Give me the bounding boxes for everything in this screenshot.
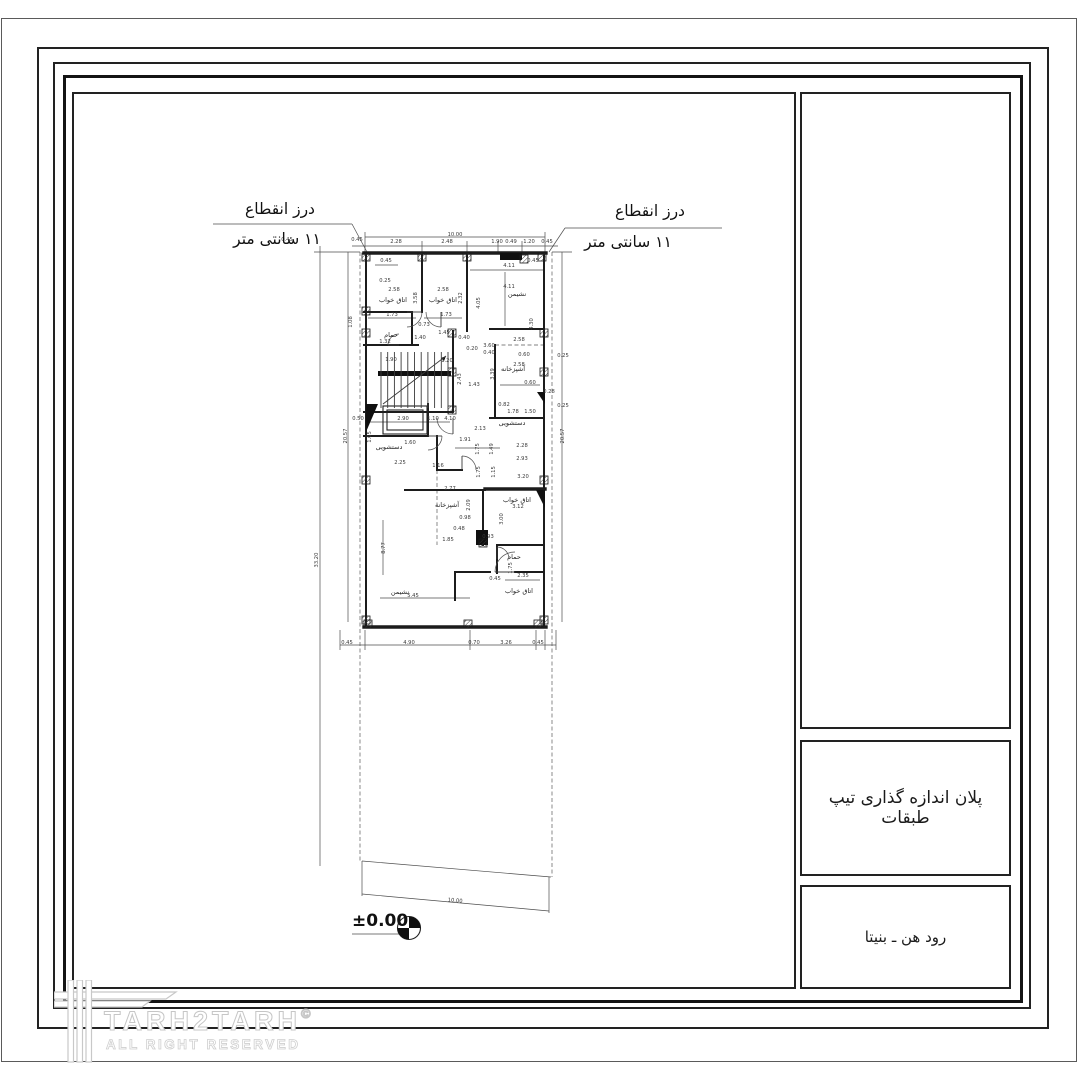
drawing-title-panel: پلان اندازه گذاری تیپ طبقات bbox=[800, 740, 1011, 876]
dim-label: 3.26 bbox=[500, 640, 512, 646]
dim-label: 4.05 bbox=[476, 297, 482, 309]
dim-label: 2.58 bbox=[513, 337, 525, 343]
dim-label: 1.16 bbox=[432, 463, 444, 469]
dim-label: 0.45 bbox=[341, 640, 353, 646]
dim-label: 3.39 bbox=[490, 368, 496, 380]
shear-wall bbox=[500, 253, 522, 260]
dim-label: 1.45 bbox=[438, 330, 450, 336]
dim-label: 0.25 bbox=[557, 353, 569, 359]
dim-label: 2.58 bbox=[388, 287, 400, 293]
project-name: رود هن ـ بنیتا bbox=[865, 928, 947, 946]
expansion-joint-note: درز انقطاع bbox=[615, 202, 685, 221]
dim-label: 2.77 bbox=[444, 486, 456, 492]
dim-label: 1.85 bbox=[442, 537, 454, 543]
room-label: نشیمن bbox=[508, 290, 526, 298]
dim-label: 2.25 bbox=[394, 460, 406, 466]
sheet: اتاق خواباتاق خوابنشیمنحمامآشپزخانهدستشو… bbox=[0, 0, 1080, 1080]
dim-label: 3.58 bbox=[413, 292, 419, 304]
dim-label: 1.10 bbox=[427, 416, 439, 422]
room-label: آشپزخانه bbox=[435, 500, 460, 509]
column bbox=[463, 253, 471, 261]
dim-label: 0.25 bbox=[379, 278, 391, 284]
column bbox=[540, 329, 548, 337]
dim-label: 0.93 bbox=[482, 534, 494, 540]
dim-label: 0.49 bbox=[505, 239, 517, 245]
door-arc bbox=[462, 456, 476, 470]
dim-label: 1.65 bbox=[367, 431, 373, 443]
dim-label: 4.90 bbox=[403, 640, 415, 646]
dim-label: 4.10 bbox=[444, 416, 456, 422]
dim-label: 2.58 bbox=[437, 287, 449, 293]
shear-wall bbox=[536, 490, 545, 508]
expansion-joint-note: ۱۱ سانتی متر bbox=[232, 230, 321, 248]
dim-label: 3.60 bbox=[483, 343, 495, 349]
room-label: اتاق خواب bbox=[505, 587, 533, 595]
dim-label: 0.20 bbox=[466, 346, 478, 352]
door-arc bbox=[428, 436, 442, 450]
watermark-brand: TARH2TARH© bbox=[104, 1006, 311, 1037]
column bbox=[534, 620, 542, 628]
level-text: ±0.00 bbox=[352, 911, 408, 931]
column bbox=[362, 476, 370, 484]
dim-label: 3.00 bbox=[499, 513, 505, 525]
shear-wall bbox=[366, 404, 378, 432]
dim-label: 0.40 bbox=[483, 350, 495, 356]
dim-label: 1.40 bbox=[414, 335, 426, 341]
dim-label: 1.73 bbox=[386, 312, 398, 318]
dim-label: 2.93 bbox=[516, 456, 528, 462]
dim-label: 2.90 bbox=[397, 416, 409, 422]
dim-label: 1.75 bbox=[508, 562, 514, 574]
dim-label: 0.50 bbox=[352, 416, 364, 422]
dim-label: 0.60 bbox=[518, 352, 530, 358]
dim-label: 0.28 bbox=[543, 389, 555, 395]
dim-label: 1.49 bbox=[489, 443, 495, 455]
column bbox=[362, 329, 370, 337]
dim-label: 2.28 bbox=[516, 443, 528, 449]
room-label: دستشویی bbox=[499, 419, 526, 427]
dim-label: 4.11 bbox=[503, 263, 515, 269]
dim-label: 2.48 bbox=[441, 239, 453, 245]
watermark-subtitle: ALL RIGHT RESERVED bbox=[106, 1037, 301, 1052]
dim-label: 0.70 bbox=[468, 640, 480, 646]
drawing-title: پلان اندازه گذاری تیپ طبقات bbox=[802, 788, 1009, 828]
dim-label: 0.45 bbox=[489, 576, 501, 582]
dim-label: 2.28 bbox=[390, 239, 402, 245]
dim-label: 20.57 bbox=[343, 429, 349, 444]
dim-label: 20.57 bbox=[560, 429, 566, 444]
dim-label: 2.43 bbox=[457, 373, 463, 385]
walls bbox=[364, 253, 546, 627]
dim-label: 1.60 bbox=[404, 440, 416, 446]
column bbox=[448, 368, 456, 376]
dim-label: 1.08 bbox=[348, 316, 354, 328]
dim-label: 1.73 bbox=[440, 312, 452, 318]
dim-label: 0.45 bbox=[380, 258, 392, 264]
dim-label: 3.20 bbox=[517, 474, 529, 480]
north-panel: NORTH bbox=[800, 92, 1011, 729]
column bbox=[540, 476, 548, 484]
dim-line bbox=[362, 861, 551, 877]
dim-label: 0.45 bbox=[351, 237, 363, 243]
column bbox=[540, 368, 548, 376]
column bbox=[362, 253, 370, 261]
plan-texts: اتاق خواباتاق خوابنشیمنحمامآشپزخانهدستشو… bbox=[232, 200, 685, 931]
room-label: اتاق خواب bbox=[503, 496, 531, 504]
dim-label: 1.91 bbox=[459, 437, 471, 443]
watermark: TARH2TARH© ALL RIGHT RESERVED bbox=[48, 980, 308, 1075]
room-label: دستشویی bbox=[376, 443, 403, 451]
dim-label: 1.50 bbox=[524, 409, 536, 415]
column bbox=[362, 307, 370, 315]
dim-label: 0.45 bbox=[527, 258, 539, 264]
column bbox=[364, 620, 372, 628]
dim-label: 1.20 bbox=[441, 358, 453, 364]
room-label: اتاق خواب bbox=[379, 296, 407, 304]
column bbox=[479, 539, 487, 547]
room-label: حمام bbox=[507, 553, 521, 561]
dim-label: 1.90 bbox=[491, 239, 503, 245]
dim-label: 1.75 bbox=[475, 443, 481, 455]
dim-label: 2.58 bbox=[513, 362, 525, 368]
dim-label: 4.11 bbox=[503, 284, 515, 290]
dim-label: 1.75 bbox=[476, 466, 482, 478]
column bbox=[418, 253, 426, 261]
dim-label: 33.20 bbox=[314, 553, 320, 568]
dim-label: 0.48 bbox=[453, 526, 465, 532]
dim-label: 0.45 bbox=[532, 640, 544, 646]
dim-label: 1.43 bbox=[468, 382, 480, 388]
dim-label: 0.25 bbox=[557, 403, 569, 409]
dim-label: 2.32 bbox=[458, 292, 464, 304]
room-label: اتاق خواب bbox=[429, 296, 457, 304]
column bbox=[538, 253, 546, 261]
dim-label: 10.00 bbox=[447, 897, 462, 904]
column bbox=[448, 406, 456, 414]
dim-label: 5.45 bbox=[407, 593, 419, 599]
expansion-joint-note: درز انقطاع bbox=[245, 200, 315, 219]
dim-label: 8.77 bbox=[381, 542, 387, 554]
dim-label: 1.90 bbox=[385, 357, 397, 363]
dim-label: 2.09 bbox=[466, 499, 472, 511]
dim-label: 0.82 bbox=[498, 402, 510, 408]
floor-plan-svg: اتاق خواباتاق خوابنشیمنحمامآشپزخانهدستشو… bbox=[72, 92, 792, 985]
dim-label: 3.12 bbox=[512, 504, 524, 510]
dim-label: 10.00 bbox=[448, 232, 463, 238]
dim-label: 0.45 bbox=[541, 239, 553, 245]
column bbox=[464, 620, 472, 628]
dim-label: 1.78 bbox=[507, 409, 519, 415]
dim-label: 1.32 bbox=[379, 339, 391, 345]
dim-label: 2.35 bbox=[517, 573, 529, 579]
dim-label: 0.60 bbox=[524, 380, 536, 386]
dim-label: 0.40 bbox=[458, 335, 470, 341]
dim-label: 2.13 bbox=[474, 426, 486, 432]
expansion-joint-note: ۱۱ سانتی متر bbox=[583, 233, 672, 251]
room-label: حمام bbox=[384, 331, 398, 339]
dim-label: 0.98 bbox=[459, 515, 471, 521]
dim-label: 1.15 bbox=[491, 466, 497, 478]
dim-label: 1.20 bbox=[523, 239, 535, 245]
level-symbol-quadrant bbox=[409, 917, 421, 929]
project-name-panel: رود هن ـ بنیتا bbox=[800, 885, 1011, 989]
dim-label: 0.73 bbox=[418, 322, 430, 328]
dim-label: 4.30 bbox=[529, 318, 535, 330]
